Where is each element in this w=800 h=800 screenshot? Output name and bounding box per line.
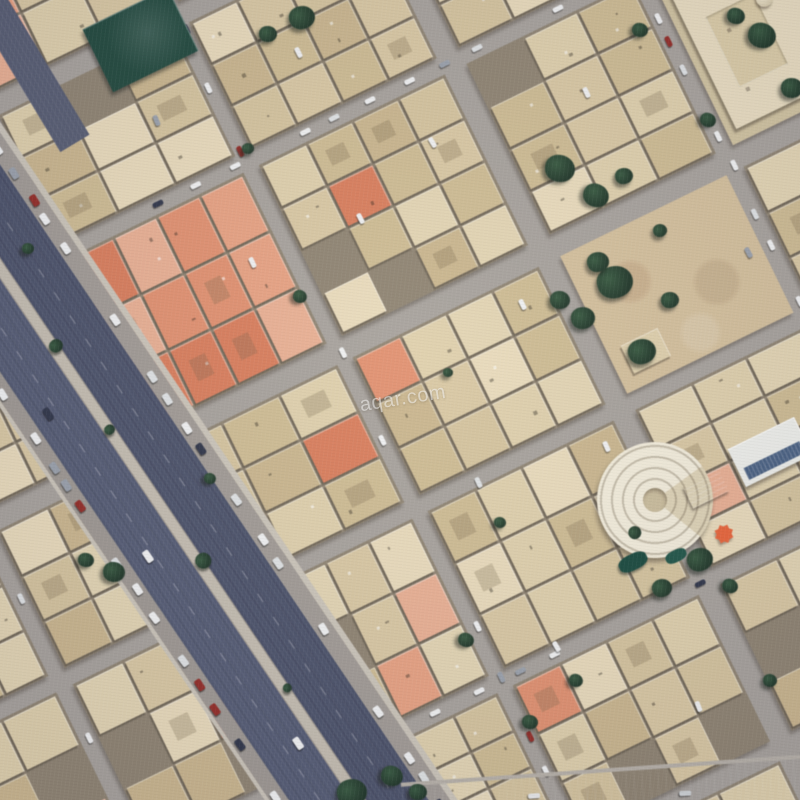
roof-vent [349,510,353,515]
parked-car [16,593,25,605]
roof-courtyard [62,192,92,219]
roof-vent [788,497,792,501]
parked-car [679,63,688,75]
roof-courtyard [345,480,376,508]
parked-car [552,5,564,14]
parked-car [694,579,706,588]
roof-highlight [211,35,215,39]
roof-highlight [615,28,619,32]
parked-car [299,128,311,137]
roof-vent [405,414,409,419]
roof-vent [254,422,258,427]
parked-car [329,113,341,122]
roof-vent [178,155,183,159]
roof-courtyard [432,245,458,270]
roof-vent [370,201,374,205]
canopy-square [715,525,733,543]
roof-highlight [737,384,741,388]
moving-car [528,793,540,799]
roof-vent [217,32,221,36]
roof-courtyard [188,352,215,382]
roof-vent [568,52,573,57]
parked-car [496,671,505,683]
roof-courtyard [231,331,258,361]
parked-car [364,96,376,105]
roof-vent [149,237,153,242]
roof-highlight [455,664,459,668]
parked-car [473,686,485,695]
roof-courtyard [41,574,68,600]
roof-highlight [376,626,380,630]
building [747,140,800,211]
roof-courtyard [474,563,502,591]
parked-car [204,82,213,94]
roof-vent [279,14,284,18]
roof-highlight [351,74,355,78]
roof-courtyard [387,36,413,60]
roof-highlight [158,257,162,261]
parked-car [514,666,526,675]
mosque-courtyard [705,0,788,88]
roof-courtyard [533,685,560,712]
roof-courtyard [168,712,197,741]
tree-cluster [780,77,800,99]
parked-car [473,621,482,633]
roof-vent [785,400,789,403]
roof-vent [638,45,642,49]
roof-vent [652,702,656,706]
roof-vent [561,197,565,201]
roof-vent [191,317,196,321]
parked-car [152,199,164,208]
parked-car [378,435,387,447]
roof-courtyard [301,389,332,417]
roof-courtyard [557,734,584,761]
roof-courtyard [204,275,231,305]
roof-courtyard [449,512,477,540]
moving-car [679,790,691,796]
roof-vent [719,379,723,383]
parked-car [429,708,441,717]
parked-car [730,159,739,171]
roof-vent [615,12,618,15]
roof-courtyard [672,737,699,764]
roof-vent [268,473,272,477]
roof-highlight [306,214,310,218]
roof-vent [174,232,179,237]
roof-courtyard [371,119,397,144]
tree-cluster [22,242,35,254]
roof-vent [242,73,246,77]
roof-vent [533,411,538,416]
parked-car [471,44,483,53]
roof-vent [406,674,411,678]
roof-courtyard [157,95,187,122]
roof-courtyard [566,519,594,547]
courtyard-tree [626,524,643,541]
roof-courtyard [790,206,800,235]
roof-vent [264,284,268,289]
roof-vent [503,747,506,750]
roof-highlight [311,505,315,509]
parked-car [664,35,673,47]
roof-highlight [347,571,351,575]
building [771,656,800,727]
roof-vent [650,567,653,570]
parked-car [766,239,775,251]
roof-vent [4,618,8,621]
roof-vent [489,588,494,593]
building [0,632,45,693]
roof-highlight [330,22,334,26]
parked-car [338,346,347,358]
roof-vent [432,754,435,758]
roof-vent [447,349,451,353]
roof-vent [139,670,143,674]
roof-vent [387,547,390,550]
roof-highlight [530,103,534,107]
building [441,0,511,43]
roof-vent [528,305,533,309]
roof-vent [385,621,390,625]
building [324,272,386,332]
tree-cluster [409,784,428,800]
roof-vent [556,145,560,148]
tree-cluster [550,291,570,309]
roof-courtyard [437,139,463,164]
roof-detail [746,87,751,92]
parked-car [190,181,202,190]
roof-vent [490,378,494,382]
roof-highlight [493,365,497,369]
roof-highlight [481,0,485,2]
parked-car [230,162,242,171]
satellite-map-view[interactable]: aqar.com [0,0,800,800]
parked-car [525,730,534,742]
imagery-layer [0,0,800,800]
roof-vent [529,546,533,550]
roof-vent [598,672,602,676]
roof-vent [45,168,50,172]
roof-highlight [564,51,568,55]
parked-car [751,208,760,220]
roof-vent [315,205,319,208]
roof-courtyard [625,641,652,668]
roof-vent [267,115,270,118]
parked-car [85,732,94,744]
parked-car [713,131,722,143]
parked-car [795,296,800,308]
parked-car [654,13,663,25]
tree-cluster [443,367,454,377]
parked-car [404,77,416,86]
roof-courtyard [639,91,668,117]
roof-highlight [473,731,477,735]
roof-courtyard [325,141,351,166]
roof-vent [338,38,342,42]
parked-car [439,60,451,69]
tree-cluster [763,673,777,686]
building-core [639,484,671,516]
